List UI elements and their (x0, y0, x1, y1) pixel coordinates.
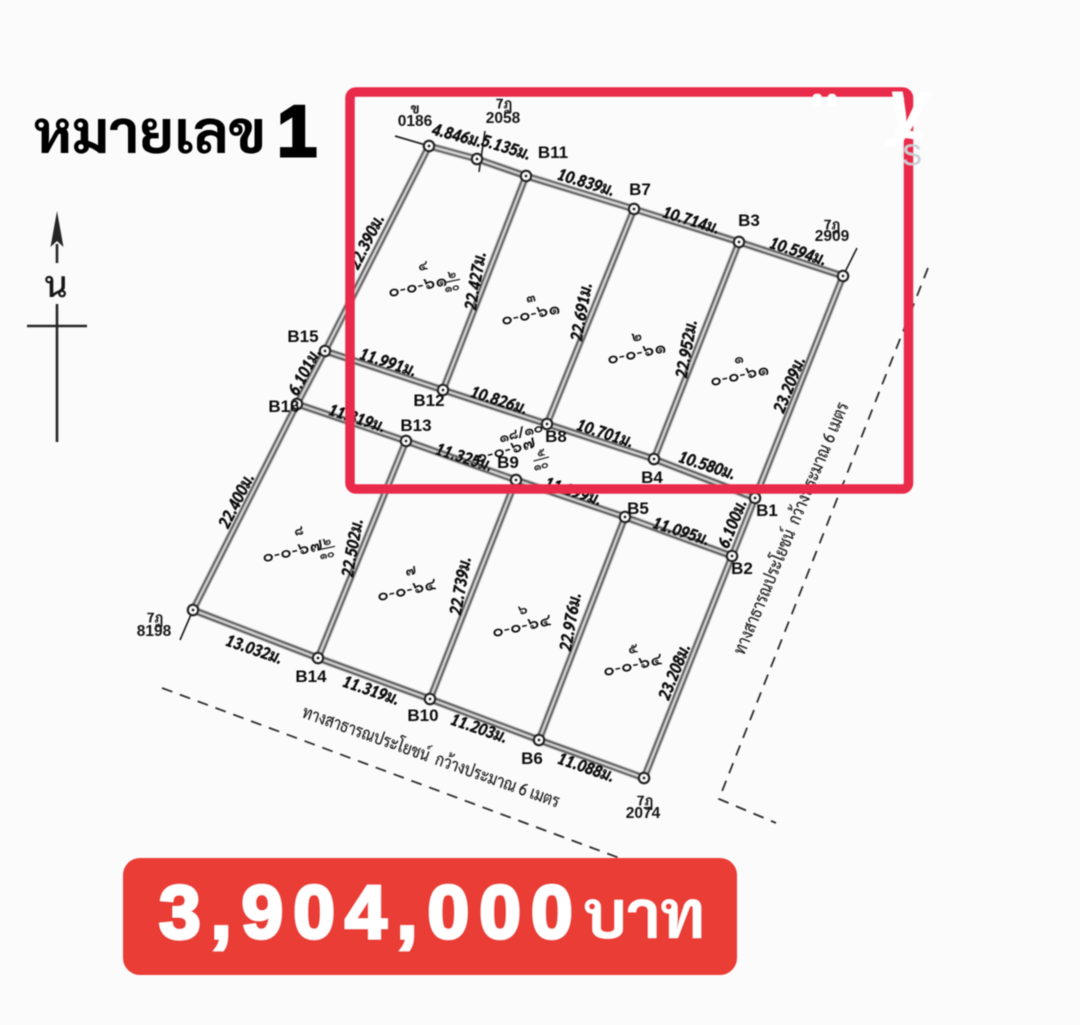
svg-text:B8: B8 (545, 427, 567, 446)
svg-text:S: S (902, 139, 922, 172)
svg-text:B14: B14 (295, 667, 327, 686)
svg-text:B4: B4 (641, 468, 663, 487)
svg-text:0186: 0186 (398, 113, 433, 130)
svg-text:B7: B7 (629, 180, 651, 199)
svg-text:2058: 2058 (486, 110, 521, 127)
svg-text:B6: B6 (521, 749, 543, 768)
svg-text:B5: B5 (627, 499, 649, 518)
svg-text:2909: 2909 (815, 228, 850, 245)
svg-text:2074: 2074 (626, 805, 661, 822)
svg-text:B2: B2 (731, 559, 753, 578)
svg-text:B11: B11 (538, 143, 568, 162)
svg-text:B3: B3 (738, 211, 760, 230)
svg-text:3,904,000: 3,904,000 (159, 870, 583, 954)
svg-text:8198: 8198 (137, 623, 172, 640)
svg-text:B1: B1 (756, 501, 778, 520)
svg-text:B12: B12 (413, 391, 444, 410)
svg-text:1: 1 (277, 92, 317, 172)
svg-text:B15: B15 (287, 327, 318, 346)
svg-text:B10: B10 (407, 706, 438, 725)
svg-text:B16: B16 (268, 397, 299, 416)
svg-text:B13: B13 (400, 416, 431, 435)
